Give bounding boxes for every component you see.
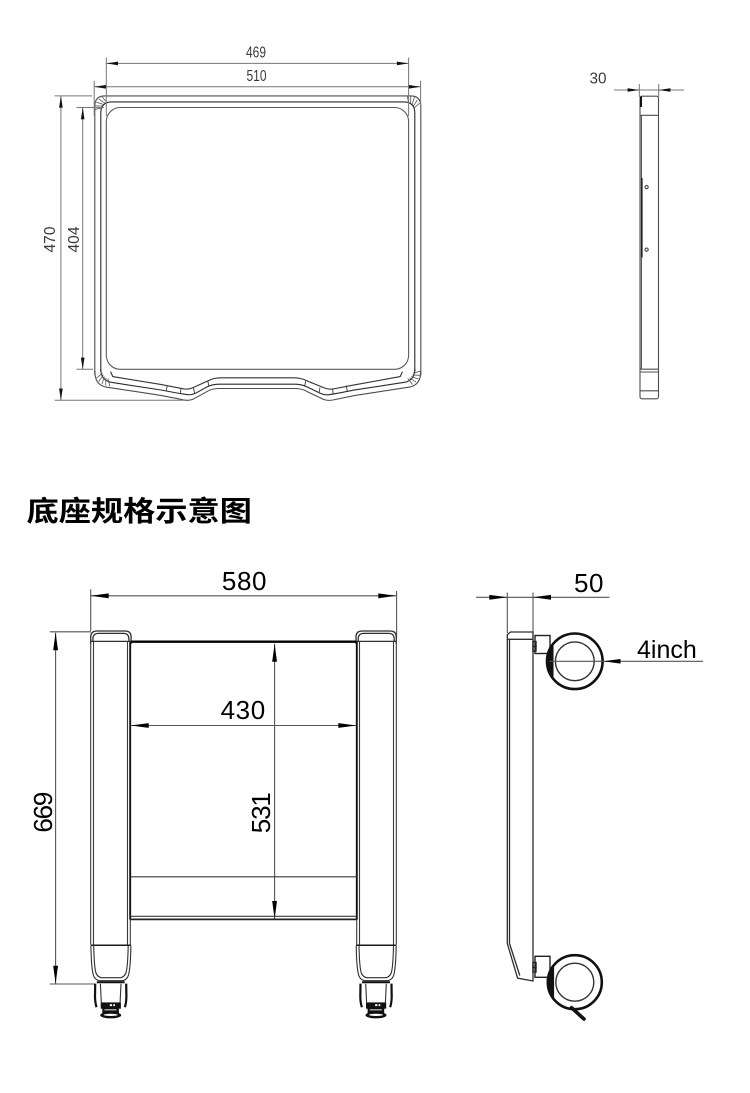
svg-text:510: 510 (247, 68, 267, 85)
svg-text:30: 30 (590, 70, 607, 87)
svg-text:4inch: 4inch (637, 636, 697, 664)
svg-text:50: 50 (574, 568, 604, 598)
svg-text:430: 430 (221, 695, 266, 725)
svg-text:469: 469 (246, 45, 266, 62)
svg-text:669: 669 (28, 792, 58, 833)
svg-text:580: 580 (222, 566, 267, 596)
svg-text:404: 404 (66, 226, 83, 252)
svg-text:470: 470 (42, 226, 59, 252)
svg-text:531: 531 (246, 793, 276, 834)
